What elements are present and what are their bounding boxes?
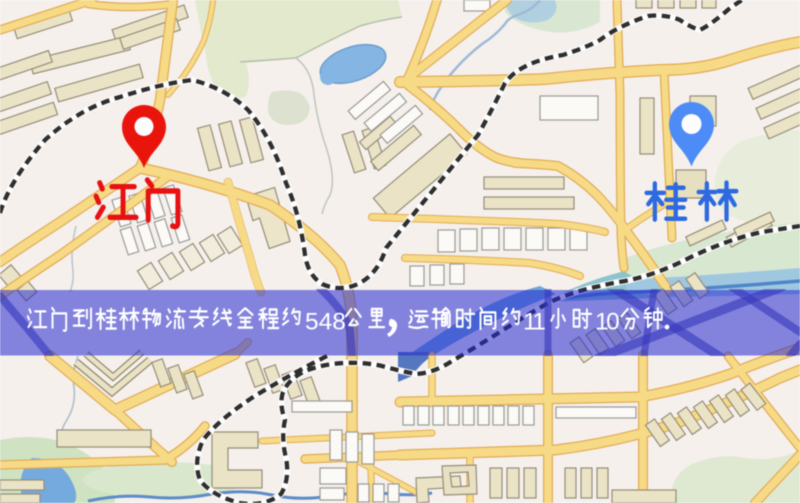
svg-text:11: 11: [523, 309, 545, 336]
svg-text:10: 10: [595, 309, 619, 336]
svg-text:548: 548: [305, 309, 346, 336]
